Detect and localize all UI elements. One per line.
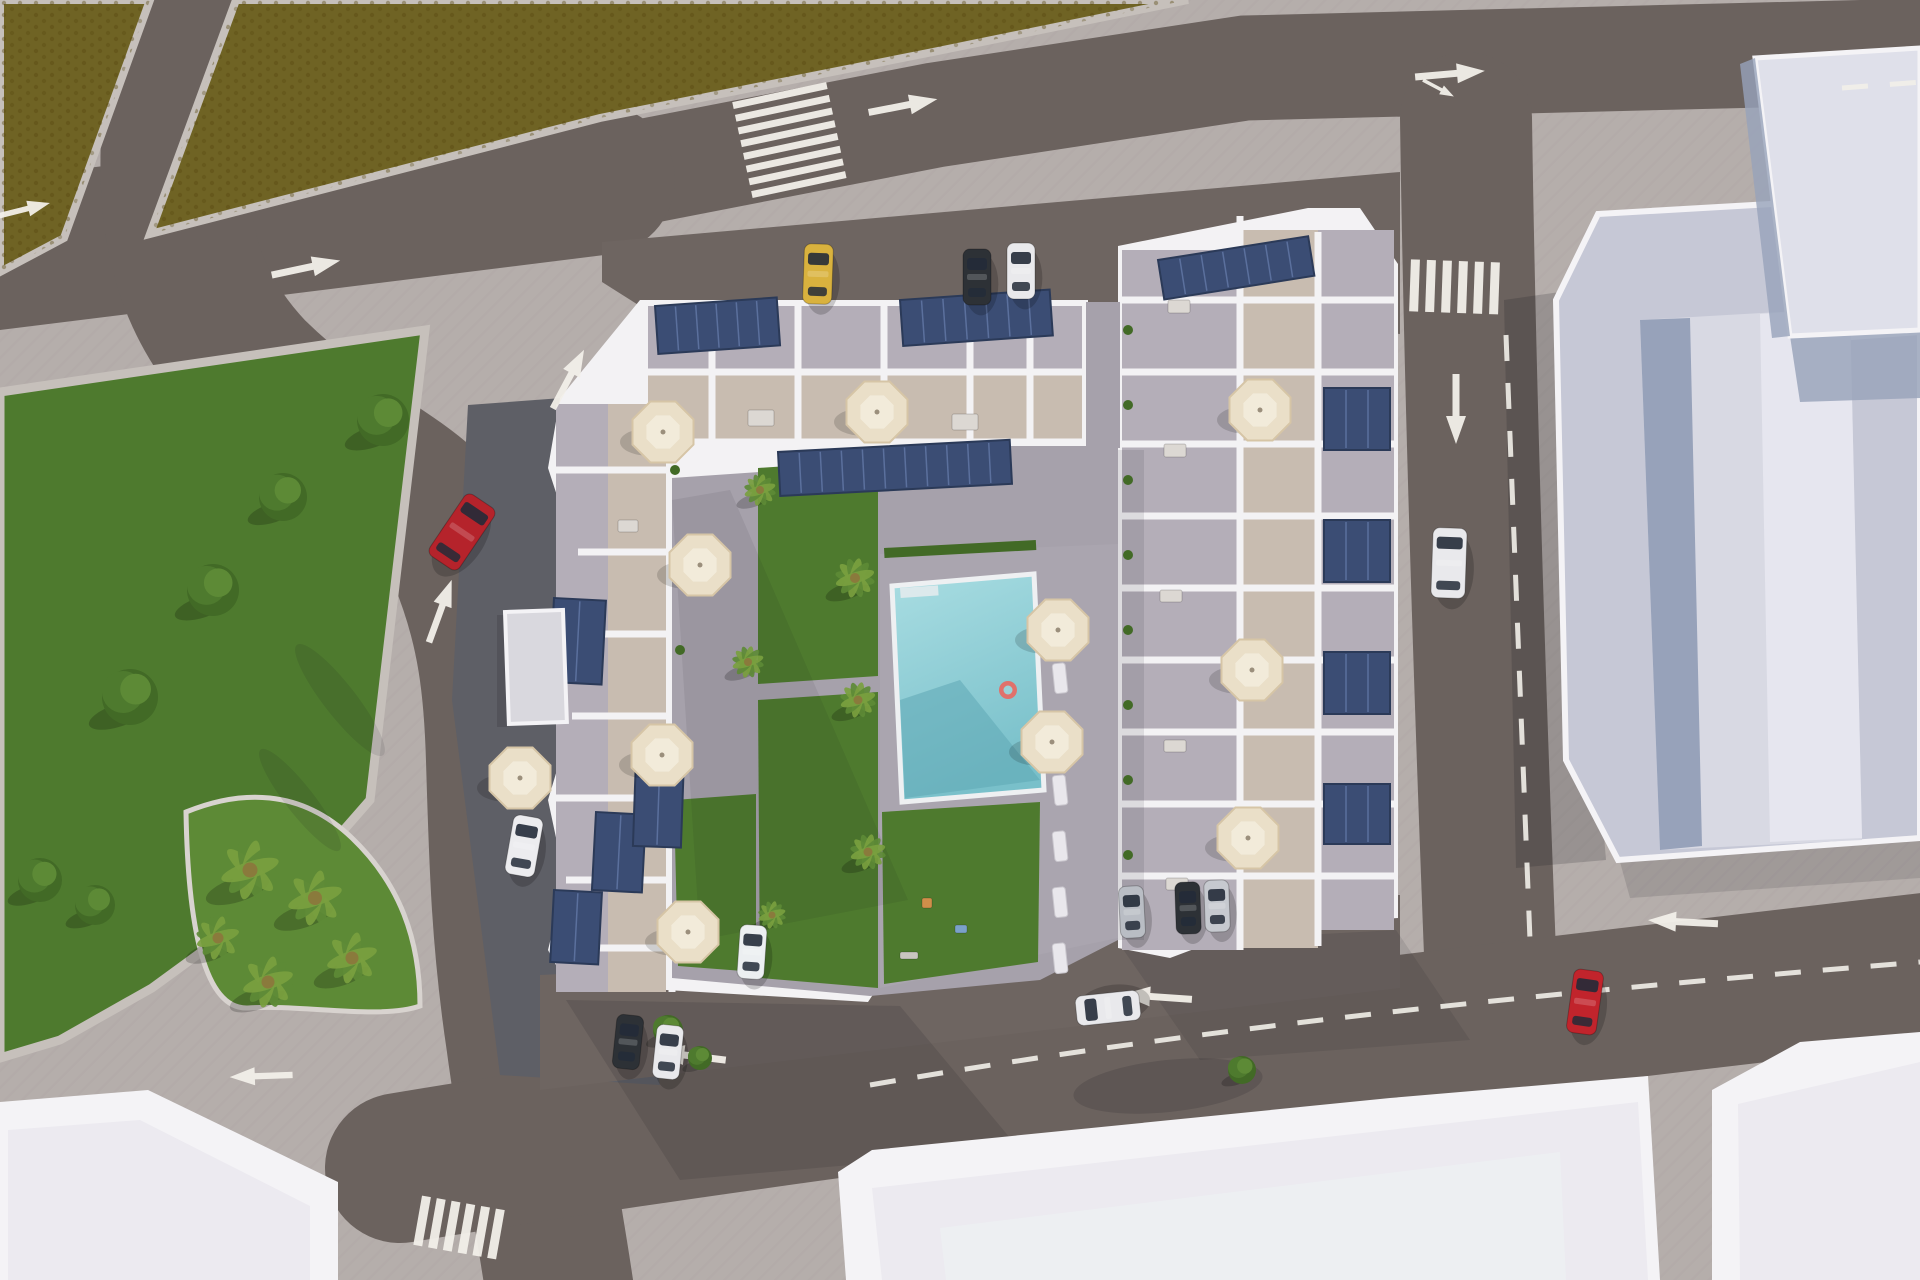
car-windshield [1084,998,1098,1021]
car-windshield [1011,252,1031,264]
umbrella-pole [698,563,703,568]
palm-trunk-top [769,912,776,919]
umbrella-pole [686,930,691,935]
planter-plant [675,645,685,655]
outdoor-furniture [1164,444,1186,457]
car-rear-window [618,1051,636,1062]
sun-lounger [1052,943,1068,974]
bush-canopy-light [696,1048,709,1061]
crosswalk-stripe [1457,261,1468,313]
umbrella-pole [1056,628,1061,633]
car-rear-window [1210,915,1225,925]
car-roof-highlight [807,271,828,278]
palm-trunk-top [850,573,860,583]
sun-lounger [1052,775,1068,806]
crosswalk-stripe [1409,259,1420,311]
car-roof-highlight [1179,905,1196,912]
site-plan-render [0,0,1920,1280]
planter-plant [1123,475,1133,485]
crosswalk-stripe [1425,260,1436,312]
planter-plant [1123,325,1133,335]
props [497,610,567,727]
car-roof-highlight [1123,909,1140,916]
palm-trunk-top [864,848,873,857]
crosswalk-stripe [1473,262,1484,314]
car-rear-window [1012,282,1030,291]
solar-panel-surface [1324,388,1390,450]
car-roof-highlight [967,274,987,280]
solar-panel-surface [1324,652,1390,714]
north-courtyard-entry [1086,302,1120,448]
outdoor-furniture [748,410,774,426]
outdoor-furniture [952,414,978,430]
palm-trunk-top [346,952,359,965]
outdoor-furniture [900,952,918,959]
car-rear-window [742,961,760,971]
car-windshield [967,258,987,270]
umbrella-pole [1246,836,1251,841]
car-windshield [743,933,763,946]
planter-plant [1123,400,1133,410]
crosswalk-stripe [1441,260,1452,312]
solar-panel [1324,520,1390,582]
outdoor-furniture [1164,740,1186,752]
palm-trunk-top [243,863,258,878]
umbrella-pole [875,410,880,415]
outdoor-furniture [922,898,932,908]
pool-float-center [1004,686,1013,695]
bush-canopy-light [88,888,110,910]
palm-trunk-top [308,891,322,905]
car-windshield [619,1023,639,1037]
bush-canopy-light [1237,1058,1252,1073]
car-windshield [1208,889,1225,902]
solar-panel [1324,388,1390,450]
crosswalk-stripe [1489,262,1500,314]
sun-lounger [1052,663,1068,694]
umbrella-pole [518,776,523,781]
car-windshield [1436,537,1462,550]
planter-plant [1123,850,1133,860]
car-rear-window [658,1061,676,1072]
solar-panel-surface [1324,784,1390,844]
umbrella-pole [1258,408,1263,413]
sun-lounger [1052,887,1068,918]
solar-panel [1324,784,1390,844]
palm-trunk-top [854,696,863,705]
pool-float-layer [999,681,1017,699]
car-rear-window [1125,921,1140,931]
outdoor-furniture [1160,590,1182,602]
bush-canopy-light [204,568,233,597]
car-rear-window [808,287,827,297]
planter-plant [670,465,680,475]
car-windshield [1179,891,1196,904]
car-windshield [1123,895,1141,908]
palm-trunk-top [262,976,275,989]
bush-canopy-light [32,862,56,886]
planter-plant [1123,625,1133,635]
planter-plant [1123,775,1133,785]
solar-panel [655,297,780,353]
outdoor-furniture [618,520,638,532]
west-wing-terraces [608,404,666,992]
palm-trunk-top [213,933,224,944]
planter-plant [1123,700,1133,710]
solar-panel-surface [1324,520,1390,582]
outdoor-furniture [955,925,967,933]
car-rear-window [1436,581,1460,591]
car-roof-highlight [1436,560,1462,567]
car-windshield [659,1033,679,1047]
palm-trunk-top [744,658,752,666]
aerial-view-canvas [0,0,1920,1280]
bush-canopy-light [275,477,301,503]
car-windshield [808,253,829,266]
umbrella-pole [660,753,665,758]
palm-trunk-top [756,486,764,494]
apartment-complex [548,208,1398,1002]
sun-lounger [1052,831,1068,862]
umbrella-pole [661,430,666,435]
car-roof-highlight [1208,903,1225,910]
utility-shed [505,610,567,724]
bush-canopy-light [120,674,151,705]
car-roof-highlight [1011,268,1031,274]
bush-canopy-light [374,398,403,427]
umbrella-pole [1250,668,1255,673]
outdoor-furniture [1168,300,1190,313]
east-block-inner-shadow [1118,450,1144,940]
car-rear-window [1181,917,1196,927]
solar-panel [1324,652,1390,714]
car-rear-window [968,288,986,297]
umbrella-pole [1050,740,1055,745]
solar-panel [550,890,602,964]
planter-plant [1123,550,1133,560]
